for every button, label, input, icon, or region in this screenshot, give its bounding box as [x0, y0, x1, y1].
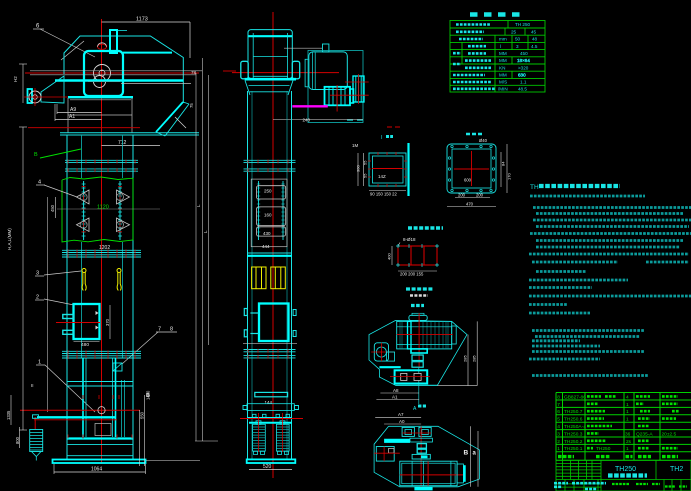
- svg-text:H2: H2: [13, 76, 18, 82]
- svg-text:1: 1: [557, 446, 560, 452]
- svg-text:78: 78: [191, 70, 197, 75]
- svg-text:470: 470: [466, 202, 474, 207]
- svg-text:200 200 155: 200 200 155: [400, 272, 424, 277]
- svg-text:1: 1: [626, 417, 629, 423]
- svg-text:14Z: 14Z: [378, 174, 386, 179]
- svg-text:450: 450: [50, 204, 55, 212]
- svg-text:400: 400: [387, 253, 392, 260]
- svg-text:285: 285: [472, 355, 477, 362]
- svg-text:TH250.2: TH250.2: [564, 439, 583, 445]
- svg-text:2s: 2s: [626, 439, 632, 445]
- svg-text:144: 144: [265, 400, 273, 405]
- svg-text:TH2: TH2: [670, 466, 683, 473]
- svg-text:250: 250: [264, 189, 272, 194]
- svg-text:1064: 1064: [91, 467, 102, 473]
- svg-text:370: 370: [105, 318, 110, 326]
- svg-text:TH250A-4: TH250A-4: [564, 424, 586, 430]
- svg-text:8: 8: [557, 394, 560, 400]
- svg-text:1335: 1335: [6, 410, 11, 420]
- svg-text:1M: 1M: [352, 143, 359, 148]
- svg-text:1173: 1173: [136, 17, 148, 23]
- svg-text:Q235-A: Q235-A: [636, 431, 653, 437]
- svg-text:84: 84: [501, 161, 506, 166]
- svg-text:8-Ø18: 8-Ø18: [403, 237, 416, 242]
- svg-text:520: 520: [263, 464, 272, 470]
- svg-text:1120: 1120: [97, 205, 109, 211]
- svg-text:1400: 1400: [146, 390, 151, 400]
- svg-text:mm: mm: [499, 37, 507, 42]
- svg-text:B: B: [464, 450, 469, 457]
- svg-text:444: 444: [262, 244, 270, 249]
- svg-text:600: 600: [464, 178, 472, 183]
- svg-text:1: 1: [626, 446, 629, 452]
- svg-text:45: 45: [531, 29, 537, 34]
- svg-text:20±2.5: 20±2.5: [662, 431, 677, 437]
- svg-text:2: 2: [557, 439, 560, 445]
- svg-text:Ø40: Ø40: [479, 138, 488, 143]
- svg-text:75: 75: [189, 103, 194, 108]
- svg-text:55: 55: [363, 160, 368, 165]
- svg-text:430: 430: [263, 231, 271, 236]
- svg-text:7: 7: [158, 327, 161, 333]
- svg-text:800: 800: [15, 436, 20, 444]
- svg-text:90 150 150 22: 90 150 150 22: [370, 192, 397, 197]
- svg-text:48: 48: [532, 37, 538, 42]
- svg-text:7: 7: [557, 402, 560, 408]
- svg-text:1: 1: [626, 402, 629, 408]
- svg-text:/MIN: /MIN: [498, 86, 508, 91]
- svg-text:A8: A8: [393, 388, 399, 393]
- svg-text:4: 4: [38, 180, 41, 186]
- svg-text:1: 1: [38, 360, 41, 366]
- svg-text:630: 630: [518, 73, 526, 78]
- svg-text:TH 250: TH 250: [515, 22, 531, 27]
- svg-text:l: l: [500, 44, 501, 49]
- svg-text:A9: A9: [70, 107, 76, 113]
- svg-text:450: 450: [520, 51, 528, 56]
- svg-text:TH250.6: TH250.6: [564, 417, 583, 423]
- svg-text:4: 4: [626, 394, 629, 400]
- svg-text:25: 25: [511, 29, 517, 34]
- svg-text:1.1: 1.1: [520, 80, 527, 85]
- svg-text:TH250.1: TH250.1: [564, 446, 583, 452]
- svg-text:3: 3: [557, 431, 560, 437]
- svg-text:5: 5: [557, 417, 560, 423]
- svg-text:50: 50: [515, 37, 521, 42]
- svg-text:II: II: [31, 383, 34, 388]
- svg-text:4: 4: [557, 424, 560, 430]
- svg-text:240: 240: [303, 118, 311, 123]
- svg-text:170: 170: [507, 173, 512, 180]
- svg-text:MM: MM: [499, 51, 507, 56]
- svg-text:160: 160: [264, 213, 272, 218]
- svg-text:A7: A7: [398, 412, 404, 417]
- svg-text:TH250.3: TH250.3: [564, 431, 583, 437]
- svg-text:TH250: TH250: [615, 466, 636, 473]
- svg-text:B: B: [34, 152, 38, 158]
- svg-text:A0: A0: [399, 419, 405, 424]
- svg-text:285: 285: [463, 355, 468, 362]
- svg-text:6: 6: [557, 409, 560, 415]
- svg-text:300: 300: [356, 165, 361, 172]
- svg-text:1: 1: [626, 409, 629, 415]
- svg-text:>320: >320: [518, 65, 529, 70]
- svg-text:A1: A1: [392, 395, 398, 400]
- svg-text:48.5: 48.5: [518, 86, 527, 91]
- svg-text:2: 2: [36, 295, 39, 301]
- svg-text:18×64: 18×64: [517, 58, 530, 63]
- svg-text:GB827-86: GB827-86: [564, 394, 586, 400]
- svg-text:M/S: M/S: [499, 80, 507, 85]
- svg-text:3: 3: [516, 44, 519, 49]
- svg-text:H,A,L(MM): H,A,L(MM): [7, 228, 12, 250]
- svg-text:8: 8: [170, 327, 173, 333]
- svg-text:36: 36: [625, 431, 631, 437]
- svg-text:TH250.7: TH250.7: [564, 409, 583, 415]
- svg-text:55: 55: [363, 173, 368, 178]
- svg-text:TH250: TH250: [596, 446, 611, 452]
- svg-text:3: 3: [36, 271, 39, 277]
- svg-text:200: 200: [458, 193, 466, 198]
- svg-text:200: 200: [476, 193, 484, 198]
- svg-text:MM: MM: [499, 73, 507, 78]
- svg-text:TH: TH: [530, 184, 539, 191]
- svg-text:4.5: 4.5: [531, 44, 538, 49]
- svg-text:KN: KN: [499, 65, 505, 70]
- svg-text:MM: MM: [499, 58, 507, 63]
- svg-text:480: 480: [81, 342, 89, 348]
- svg-text:550: 550: [140, 411, 145, 419]
